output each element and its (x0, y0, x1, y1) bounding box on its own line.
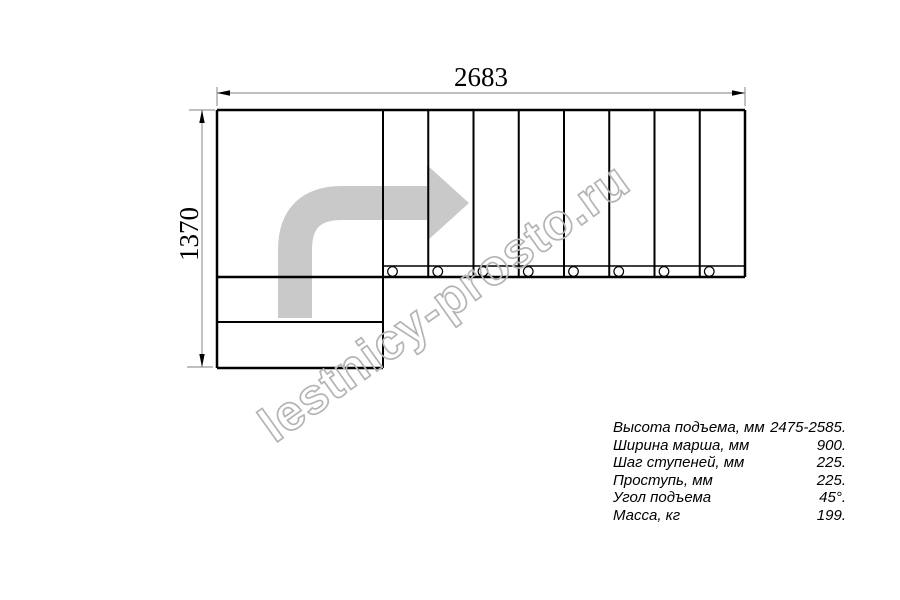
spec-row: Угол подъема 45°. (613, 489, 846, 507)
width-dimension-value: 2683 (421, 62, 541, 93)
spec-label: Проступь, мм (613, 472, 713, 490)
spec-label: Ширина марша, мм (613, 437, 749, 455)
spec-value: 900. (817, 437, 846, 455)
staircase-drawing-page: lestnicy-prosto.ru 2683 1370 Высота подъ… (0, 0, 900, 600)
spec-row: Высота подъема, мм 2475-2585. (613, 419, 846, 437)
dim-arrow-left (217, 90, 230, 95)
dim-arrow-right (732, 90, 745, 95)
spec-value: 45°. (819, 489, 846, 507)
spec-value: 225. (817, 454, 846, 472)
direction-arrow-head (427, 165, 469, 241)
spec-label: Угол подъема (613, 489, 711, 507)
bolt-circle (388, 267, 398, 277)
bolt-circle (704, 267, 714, 277)
bolt-circle (659, 267, 669, 277)
dimension-lines (187, 87, 745, 367)
spec-row: Шаг ступеней, мм 225. (613, 454, 846, 472)
spec-value: 199. (817, 507, 846, 525)
bolt-circle (569, 267, 579, 277)
spec-label: Высота подъема, мм (613, 419, 765, 437)
spec-label: Масса, кг (613, 507, 680, 525)
specifications-table: Высота подъема, мм 2475-2585. Ширина мар… (613, 419, 846, 525)
dim-arrow-down (199, 354, 204, 367)
spec-value: 225. (817, 472, 846, 490)
spec-row: Масса, кг 199. (613, 507, 846, 525)
spec-value: 2475-2585. (770, 419, 846, 437)
spec-label: Шаг ступеней, мм (613, 454, 744, 472)
height-dimension-value: 1370 (175, 174, 203, 294)
dim-arrow-up (199, 110, 204, 123)
spec-row: Ширина марша, мм 900. (613, 437, 846, 455)
bolt-circle (614, 267, 624, 277)
spec-row: Проступь, мм 225. (613, 472, 846, 490)
